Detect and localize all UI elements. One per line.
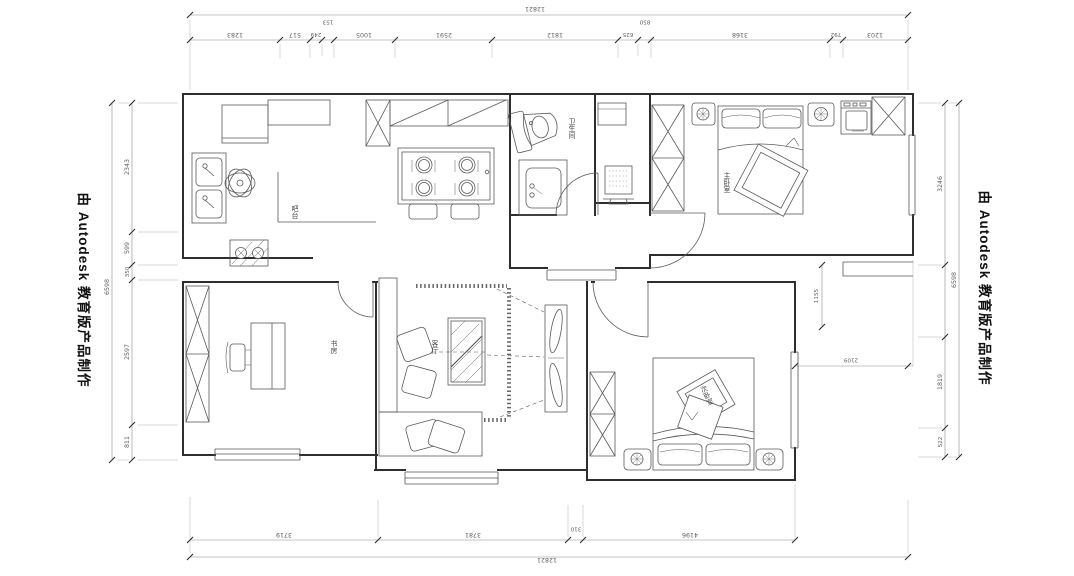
kitchen-plant: [224, 165, 256, 201]
svg-text:2597: 2597: [124, 344, 131, 360]
dimension-text-top: 12821 1283 517 249 153 1005 2591 1812 62…: [227, 5, 883, 38]
bathroom-vanity: [519, 160, 567, 215]
study-window: [215, 449, 300, 460]
svg-text:310: 310: [570, 526, 581, 532]
study-door: [338, 282, 373, 317]
svg-text:3719: 3719: [276, 531, 292, 538]
floor-plan-canvas: 12821 1283 517 249 153 1005 2591 1812 62…: [0, 0, 1074, 576]
master-tv-dresser: [841, 101, 871, 134]
master-window: [909, 135, 915, 215]
room-label-living-room: 客厅: [431, 340, 438, 354]
washing-machine: [603, 166, 634, 204]
exterior-interior-walls: [183, 94, 913, 480]
living-room: [379, 278, 567, 456]
bedroom2-bed: [653, 358, 754, 470]
tv-unit: [545, 305, 567, 412]
dining-cabinet-x: [366, 100, 390, 146]
bedroom2-nightstand-left: [624, 449, 651, 470]
svg-text:4196: 4196: [682, 531, 698, 538]
study-desk: [251, 323, 285, 389]
svg-text:1203: 1203: [867, 31, 883, 38]
second-bedroom: [590, 358, 783, 470]
dining-table: [398, 148, 494, 204]
svg-text:6598: 6598: [951, 272, 958, 288]
svg-text:249: 249: [310, 31, 321, 37]
svg-text:1812: 1812: [547, 31, 563, 38]
svg-text:1283: 1283: [227, 31, 243, 38]
dimension-text-bottom: 3719 3781 310 4196 12821: [276, 526, 698, 563]
svg-text:2109: 2109: [843, 357, 858, 363]
svg-text:3168: 3168: [732, 31, 748, 38]
svg-text:12821: 12821: [525, 5, 545, 12]
room-label-bathroom: 卫生间: [568, 118, 575, 139]
fridge: [222, 105, 268, 143]
dimension-lines: [112, 15, 959, 557]
bathroom-door: [556, 173, 598, 215]
coffee-table-rug: [448, 318, 485, 385]
master-nightstand-left: [692, 103, 715, 125]
toilet: [508, 103, 561, 153]
dimension-text-right: 3246 1819 522 6598: [937, 176, 958, 447]
svg-text:3246: 3246: [937, 176, 944, 192]
svg-text:599: 599: [124, 242, 131, 254]
master-door: [650, 213, 705, 268]
bedroom2-door: [593, 282, 648, 337]
svg-text:12821: 12821: [537, 556, 557, 563]
dining-chair: [409, 204, 437, 219]
dining-chair: [451, 204, 479, 219]
svg-text:1819: 1819: [937, 374, 944, 390]
svg-text:2591: 2591: [436, 31, 452, 38]
svg-text:2343: 2343: [124, 159, 131, 175]
svg-text:1155: 1155: [814, 288, 820, 303]
sofa: [379, 278, 482, 456]
windows: [215, 135, 915, 484]
room-label-study: 书房: [330, 340, 337, 354]
kitchen-sink: [192, 153, 226, 223]
dimension-text-interior: 1155 2109: [814, 288, 858, 362]
living-window: [405, 472, 498, 484]
kitchen-top-counter: [268, 100, 330, 125]
dining-area: [366, 100, 508, 219]
study-wardrobe-x: [186, 286, 209, 422]
master-corner-cabinet-x: [872, 97, 905, 135]
master-quilt: [734, 144, 808, 216]
cad-floor-plan-sheet: 由 Autodesk 教育版产品制作 由 Autodesk 教育版产品制作 12…: [0, 0, 1074, 576]
svg-text:6598: 6598: [104, 279, 111, 295]
svg-text:522: 522: [938, 437, 944, 448]
bedroom2-nightstand-right: [756, 449, 783, 470]
entry-threshold: [547, 270, 616, 280]
svg-text:625: 625: [622, 31, 633, 37]
hall-cabinet: [598, 103, 626, 125]
dimension-extension-lines: [118, 20, 957, 553]
svg-text:811: 811: [124, 436, 131, 448]
master-radiator: [843, 262, 913, 276]
svg-text:153: 153: [322, 19, 333, 25]
bedroom2-cabinet-x: [590, 372, 615, 456]
master-bed: [718, 106, 808, 216]
tv-sightlines: [432, 289, 544, 417]
svg-text:3781: 3781: [465, 531, 481, 538]
master-wardrobe-x: [652, 105, 684, 211]
master-bedroom: [652, 97, 905, 216]
dimension-text-left: 2343 599 350 2597 811 6598: [104, 159, 131, 448]
room-label-master-bedroom: 主卧室: [723, 172, 730, 193]
gas-stove: [230, 240, 268, 266]
master-nightstand-right: [808, 103, 834, 126]
svg-text:517: 517: [289, 31, 301, 38]
svg-text:350: 350: [125, 266, 131, 277]
kitchen: [192, 100, 376, 266]
room-label-bar: 吧台: [291, 205, 298, 219]
svg-text:792: 792: [831, 31, 842, 37]
dining-sideboard: [390, 100, 508, 126]
study-chair: [226, 342, 251, 373]
svg-text:850: 850: [639, 19, 650, 25]
svg-text:1005: 1005: [356, 31, 372, 38]
study: [186, 286, 285, 422]
